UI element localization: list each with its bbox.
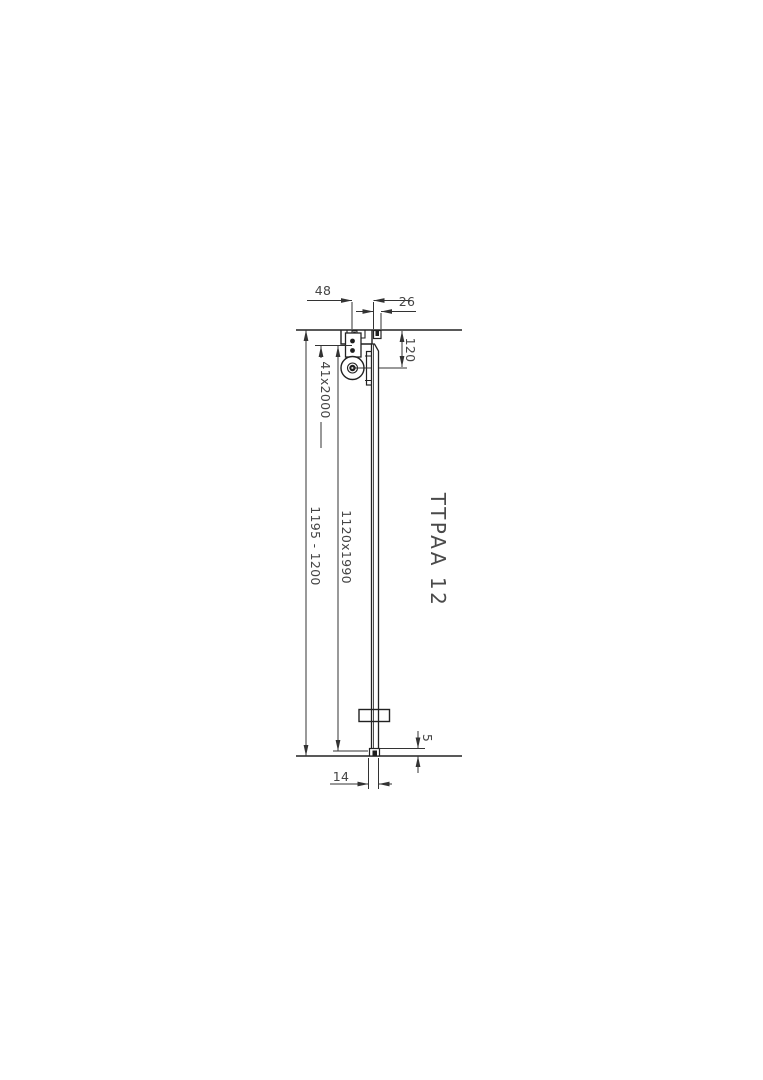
side-spacer <box>374 331 382 339</box>
drawing-sheet: 48 26 120 41x2000 1195 - 1200 1120x1990 … <box>0 0 763 1080</box>
label-track-width: 48 <box>306 283 340 299</box>
product-title: TTPAA 12 <box>426 487 450 613</box>
door-panel <box>372 344 379 756</box>
screw-icon <box>350 348 355 353</box>
label-panel-size: 1120x1990 <box>338 507 354 587</box>
label-profile-size: 41x2000 <box>317 358 333 422</box>
technical-drawing <box>0 0 763 1080</box>
label-hanger-height: 120 <box>402 333 418 367</box>
floor-guide <box>370 749 380 757</box>
label-panel-thickness: 14 <box>326 769 356 785</box>
dim-side-offset <box>356 309 416 329</box>
label-side-offset: 26 <box>390 294 424 310</box>
label-floor-clearance: 5 <box>419 730 435 746</box>
screw-icon <box>350 339 355 344</box>
label-overall-height: 1195 - 1200 <box>307 501 323 591</box>
